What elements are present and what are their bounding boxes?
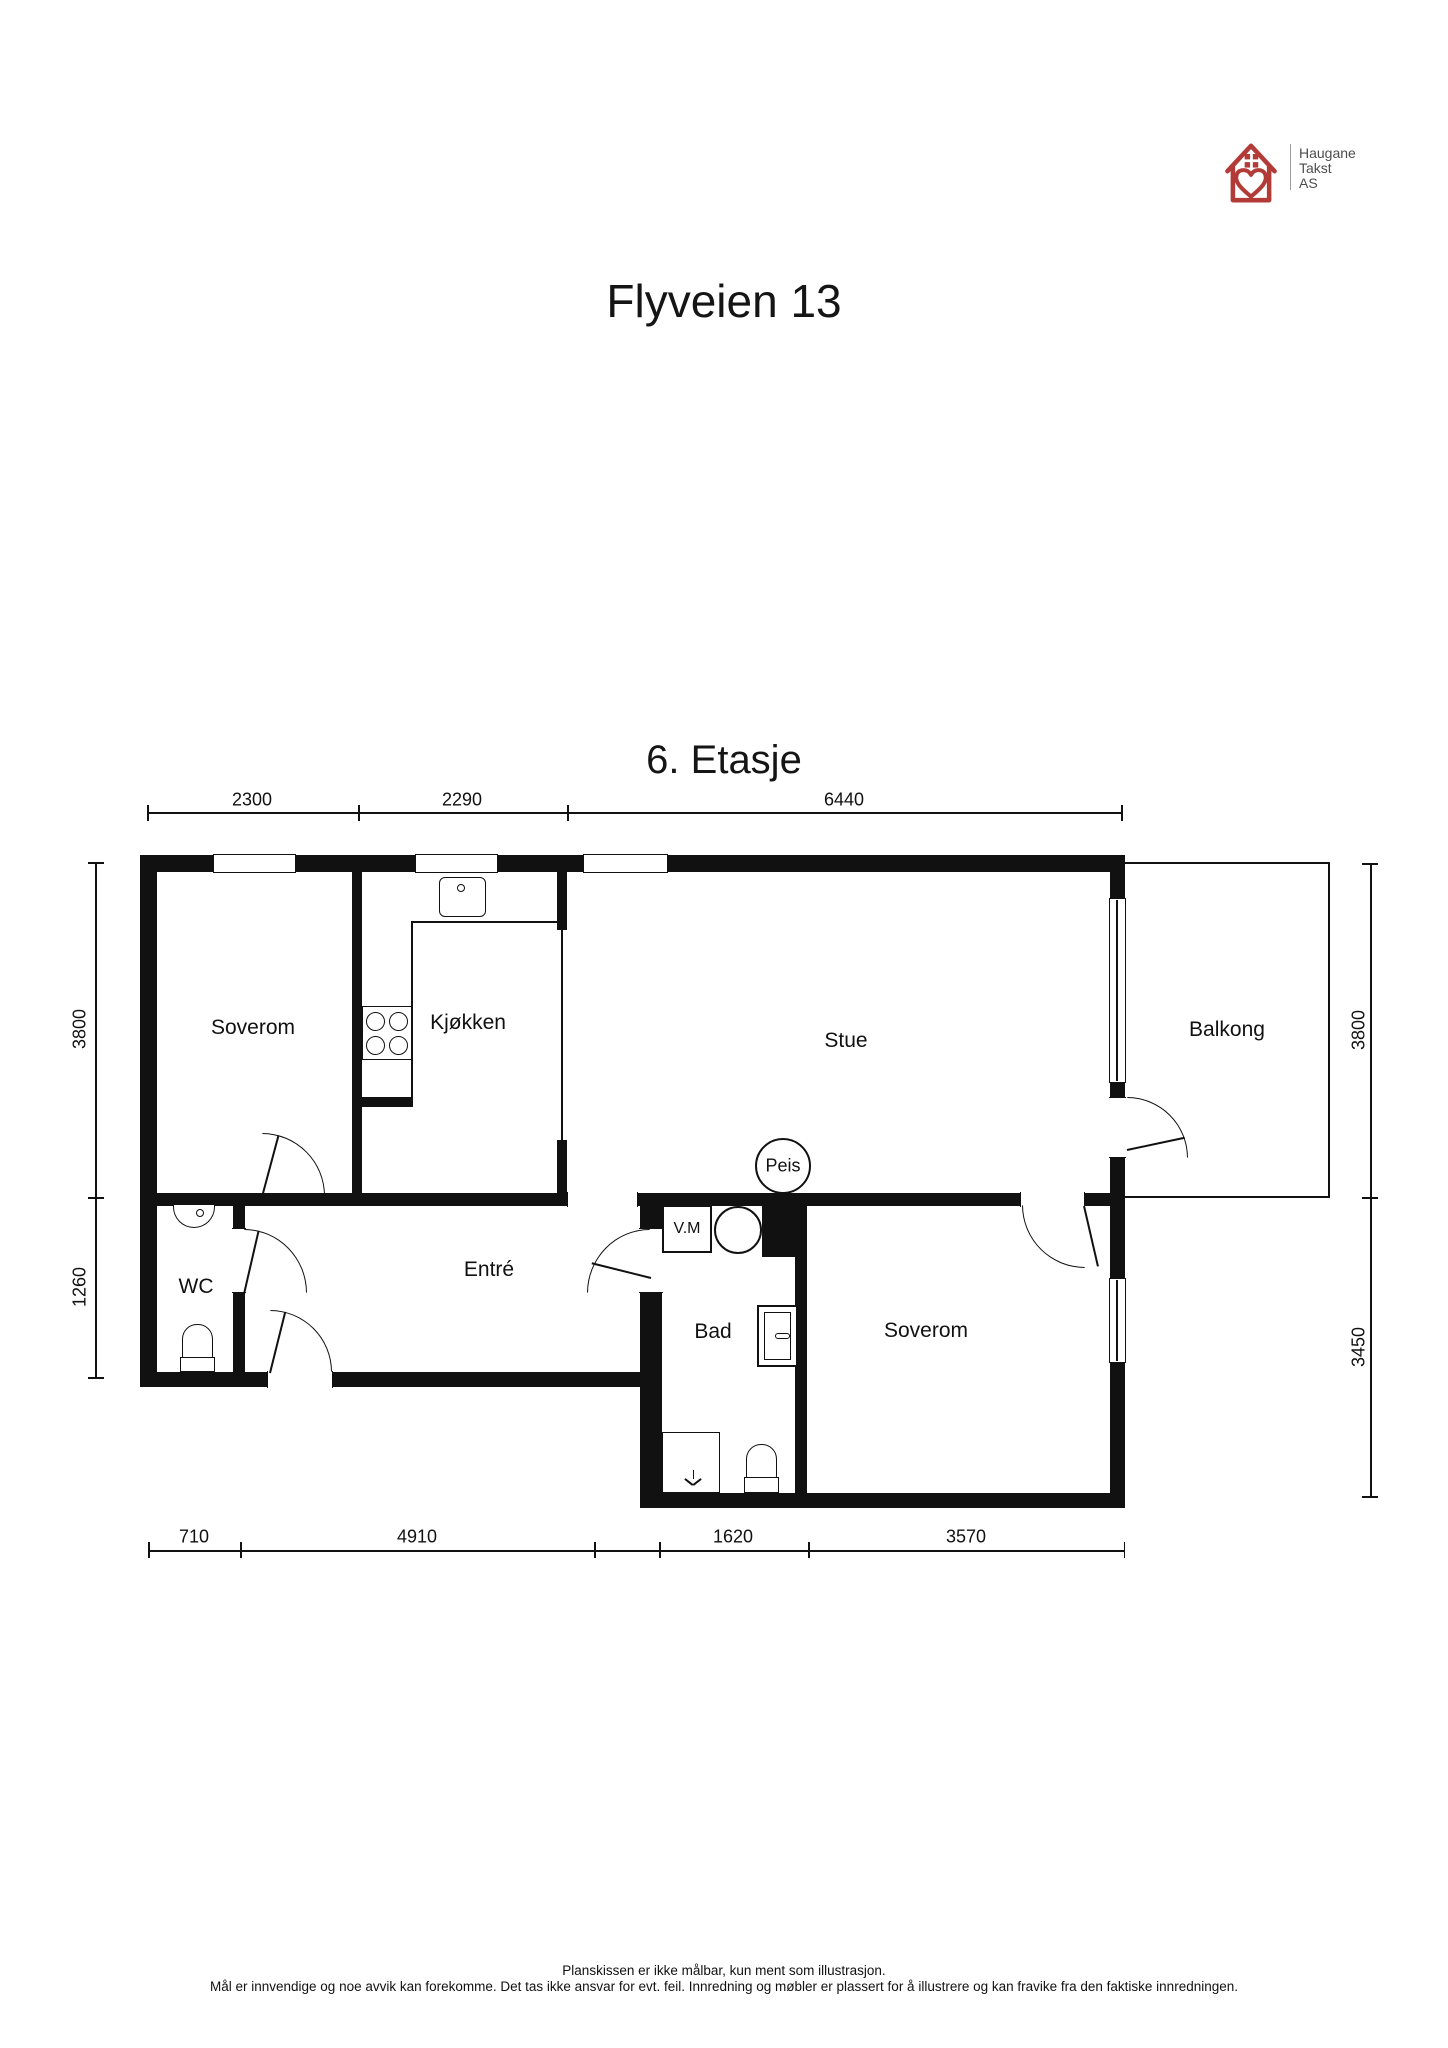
window-stue-right-pane <box>1116 900 1118 1081</box>
dim-tick <box>1124 1542 1126 1558</box>
door-leaf-soverom2 <box>1083 1206 1099 1267</box>
dim-value: 1260 <box>70 1267 91 1307</box>
shower-drain-icon <box>693 1470 695 1479</box>
room-label-wc: WC <box>179 1275 214 1299</box>
dim-value: 2300 <box>232 790 272 811</box>
floorplan-page: Haugane Takst AS Flyveien 13 6. Etasje <box>0 0 1448 2048</box>
door-arc-wc <box>244 1229 307 1293</box>
dim-line <box>1370 863 1372 1497</box>
label-fireplace: Peis <box>765 1156 800 1177</box>
wall-soverom-kjokken-divider <box>352 872 362 1193</box>
page-title: Flyveien 13 <box>0 274 1448 328</box>
opening-entre-stue-passage <box>567 1192 638 1207</box>
footer-line-1: Planskissen er ikke målbar, kun ment som… <box>0 1963 1448 1979</box>
dim-value: 3450 <box>1349 1327 1370 1367</box>
dim-value: 2290 <box>442 790 482 811</box>
wc-sink-icon <box>173 1205 215 1228</box>
stove-burner-icon <box>366 1012 385 1031</box>
door-arc-soverom2 <box>1022 1205 1085 1268</box>
dim-tick <box>808 1542 810 1558</box>
wall-kjokken-stue-top-stub <box>557 872 567 930</box>
room-label-entre: Entré <box>464 1258 514 1282</box>
dim-line <box>148 1550 1125 1552</box>
footer-line-2: Mål er innvendige og noe avvik kan forek… <box>0 1979 1448 1995</box>
logo-text-line3: AS <box>1299 176 1356 191</box>
dim-tick <box>1362 1496 1378 1498</box>
opening-entrance-door <box>267 1371 333 1388</box>
kitchen-sink-faucet-icon <box>457 884 465 892</box>
room-label-soverom-2: Soverom <box>884 1319 968 1343</box>
dim-tick <box>659 1542 661 1558</box>
wc-sink-faucet-icon <box>196 1209 204 1217</box>
kjokken-stue-boundary-line <box>561 930 563 1140</box>
kitchen-counter-front-line <box>412 921 558 923</box>
shower-cabinet-handle-icon <box>775 1333 790 1339</box>
window-stue-top <box>583 854 668 873</box>
dim-value: 710 <box>179 1527 209 1548</box>
dim-value: 4910 <box>397 1527 437 1548</box>
stove-burner-icon <box>389 1012 408 1031</box>
dim-value: 1620 <box>713 1527 753 1548</box>
dim-tick <box>148 1542 150 1558</box>
bad-toilet-bowl-icon <box>746 1444 777 1480</box>
dim-value: 3800 <box>1349 1010 1370 1050</box>
dim-tick <box>1121 805 1123 821</box>
bad-toilet-base-icon <box>744 1477 779 1493</box>
dim-tick <box>240 1542 242 1558</box>
room-label-bad: Bad <box>694 1320 731 1344</box>
wc-toilet-bowl-icon <box>182 1324 213 1360</box>
dim-tick <box>147 805 149 821</box>
window-soverom2 <box>1109 1278 1126 1363</box>
dim-line <box>95 862 97 1378</box>
dim-tick <box>358 805 360 821</box>
wc-toilet-base-icon <box>180 1357 215 1372</box>
room-label-kjokken: Kjøkken <box>430 1011 506 1035</box>
dim-value: 3570 <box>946 1527 986 1548</box>
logo-text-line2: Takst <box>1299 161 1356 176</box>
company-logo: Haugane Takst AS <box>1222 138 1356 213</box>
label-washing-machine: V.M <box>674 1220 701 1238</box>
window-soverom1 <box>213 854 296 873</box>
room-label-stue: Stue <box>824 1029 867 1053</box>
dim-tick <box>1362 1197 1378 1199</box>
house-heart-logo-icon <box>1222 138 1280 213</box>
dim-tick <box>88 1197 104 1199</box>
dim-value: 6440 <box>824 790 864 811</box>
wall-bottom-left <box>140 1372 643 1387</box>
floor-label: 6. Etasje <box>0 738 1448 783</box>
stove-burner-icon <box>389 1036 408 1055</box>
dim-value: 3800 <box>70 1009 91 1049</box>
logo-divider <box>1290 144 1291 190</box>
window-soverom2-pane <box>1116 1280 1118 1361</box>
wall-bottom-right <box>643 1493 1125 1508</box>
dim-tick <box>594 1542 596 1558</box>
dim-tick <box>88 1377 104 1379</box>
room-label-balkong: Balkong <box>1189 1018 1265 1042</box>
door-arc-entrance <box>270 1310 332 1372</box>
window-stue-right <box>1109 898 1126 1083</box>
logo-text: Haugane Takst AS <box>1299 138 1356 191</box>
window-kjokken <box>415 854 498 873</box>
dim-tick <box>567 805 569 821</box>
opening-balcony-door <box>1109 1097 1126 1158</box>
dim-tick <box>1362 863 1378 865</box>
dim-tick <box>88 862 104 864</box>
bad-sink-icon <box>714 1206 762 1254</box>
wall-kjokken-stue-bottom-stub <box>557 1140 567 1193</box>
dim-line <box>147 812 1122 814</box>
logo-text-line1: Haugane <box>1299 146 1356 161</box>
wall-kitchen-stub <box>352 1097 413 1107</box>
kitchen-sink-icon <box>439 877 486 917</box>
stove-burner-icon <box>366 1036 385 1055</box>
footer-disclaimer: Planskissen er ikke målbar, kun ment som… <box>0 1963 1448 1995</box>
room-label-soverom-1: Soverom <box>211 1016 295 1040</box>
wall-left <box>140 855 157 1387</box>
door-arc-bad <box>587 1229 650 1293</box>
